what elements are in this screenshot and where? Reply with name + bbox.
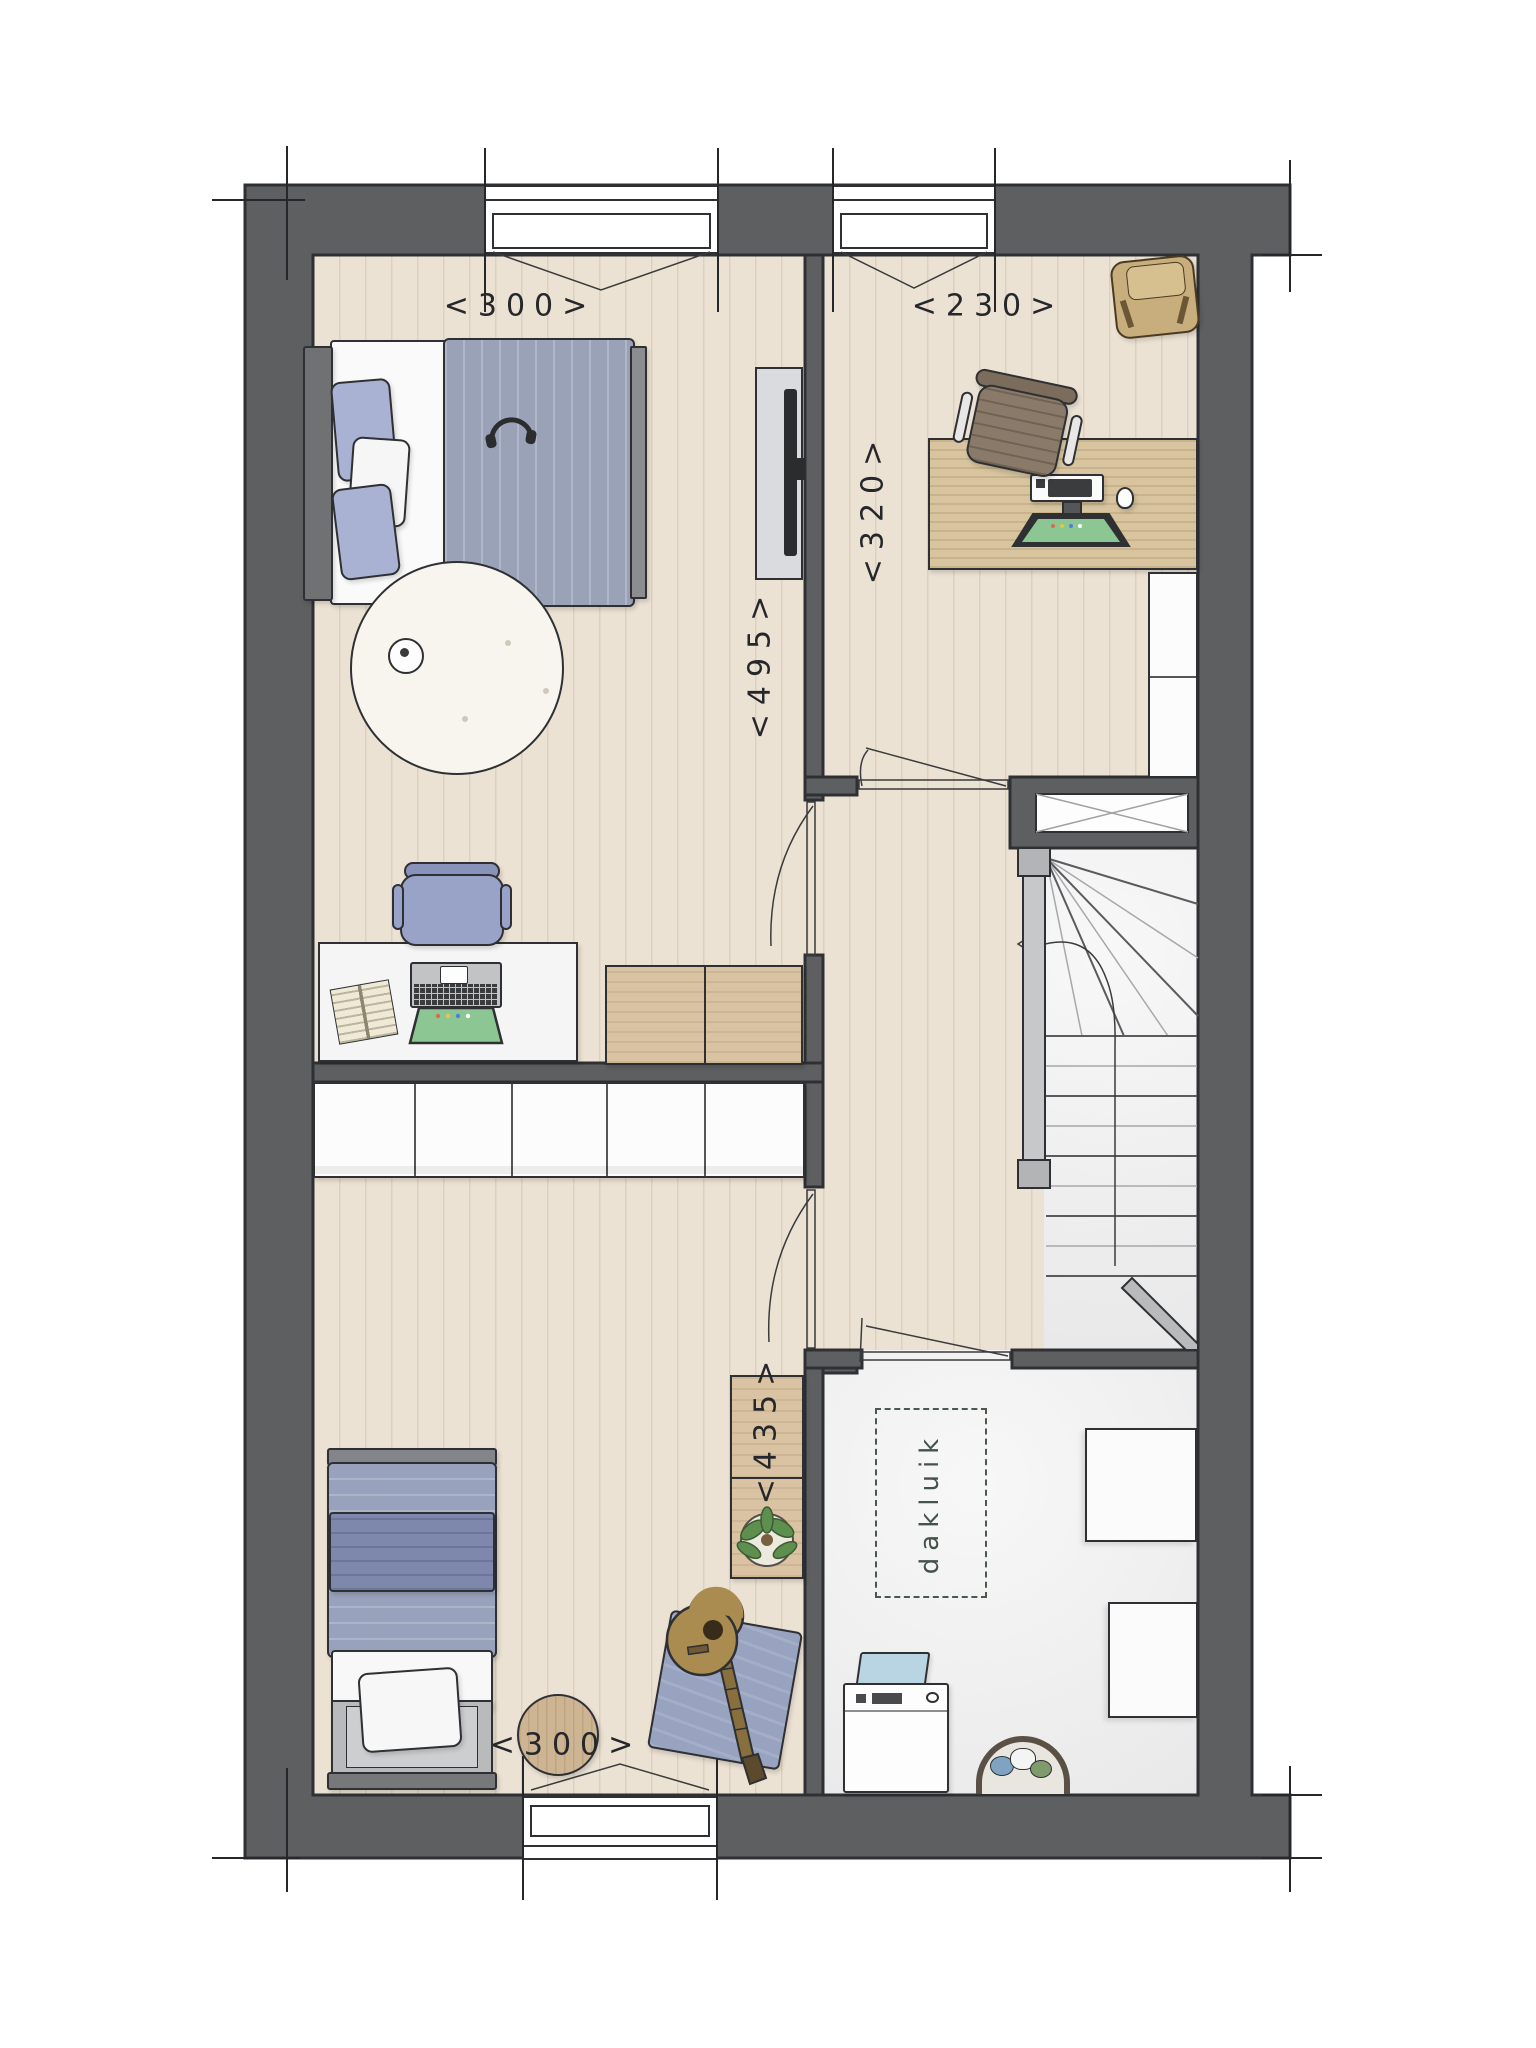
- bed-single-foot-bar: [327, 1772, 497, 1790]
- monitor: [1005, 498, 1137, 550]
- headphones-icon: [482, 402, 540, 454]
- bed-single-blanket: [329, 1512, 495, 1592]
- guitar-icon: [640, 1580, 780, 1795]
- backpack-flap: [1125, 261, 1186, 301]
- dimension-bedroom-1-depth: <495>: [743, 587, 778, 740]
- wardrobe-divider-4: [704, 1084, 706, 1176]
- desk-chair-1-seat: [400, 874, 504, 946]
- utility-unit-2: [1108, 1602, 1198, 1718]
- laptop-screen: [408, 1006, 504, 1046]
- furniture: [0, 0, 1536, 2048]
- dimension-bedroom-2-depth: <320>: [856, 432, 891, 585]
- rug-dot-1: [505, 640, 511, 646]
- round-rug: [350, 561, 564, 775]
- washer-panel-line: [845, 1710, 947, 1712]
- wardrobe-divider-1: [414, 1084, 416, 1176]
- bed-double-headboard: [303, 346, 333, 601]
- cabinet-divider: [704, 967, 706, 1063]
- laptop-camera: [440, 966, 468, 984]
- wardrobe-shadow: [315, 1166, 803, 1174]
- dimension-bedroom-1-width: <300>: [444, 289, 597, 324]
- wardrobe-divider-2: [511, 1084, 513, 1176]
- washing-machine-lid: [856, 1652, 931, 1686]
- ball-spot: [400, 648, 409, 657]
- desk-chair-1-arm-right: [500, 884, 512, 930]
- plant-icon: [735, 1502, 801, 1576]
- wardrobe-row: [313, 1082, 805, 1178]
- wardrobe-2-divider: [1150, 676, 1196, 678]
- laundry-item-green: [1030, 1760, 1052, 1778]
- washer-display: [872, 1693, 902, 1704]
- dimension-bedroom-3-width: <300>: [490, 1728, 643, 1763]
- desk-chair-1-arm-left: [392, 884, 404, 930]
- floor-plan: <300> <230> <320> <495> <435> <300> dakl…: [0, 0, 1536, 2048]
- wardrobe-divider-3: [606, 1084, 608, 1176]
- rug-dot-2: [543, 688, 549, 694]
- roof-hatch-label: dakluik: [915, 1432, 945, 1574]
- tv-mount: [794, 458, 805, 480]
- dimension-bedroom-3-depth: <435>: [749, 1352, 784, 1505]
- laptop-keys: [414, 984, 498, 1005]
- utility-unit-1: [1085, 1428, 1197, 1542]
- bed-single-pillow: [357, 1667, 462, 1754]
- wardrobe-bedroom-2: [1148, 572, 1198, 778]
- pillow-blue-2: [331, 483, 402, 582]
- washer-dial: [926, 1692, 939, 1703]
- dimension-bedroom-2-width: <230>: [912, 289, 1065, 324]
- rug-dot-3: [462, 716, 468, 722]
- open-book: [330, 979, 399, 1045]
- washer-button: [856, 1694, 866, 1703]
- bed-double-footboard: [630, 346, 647, 599]
